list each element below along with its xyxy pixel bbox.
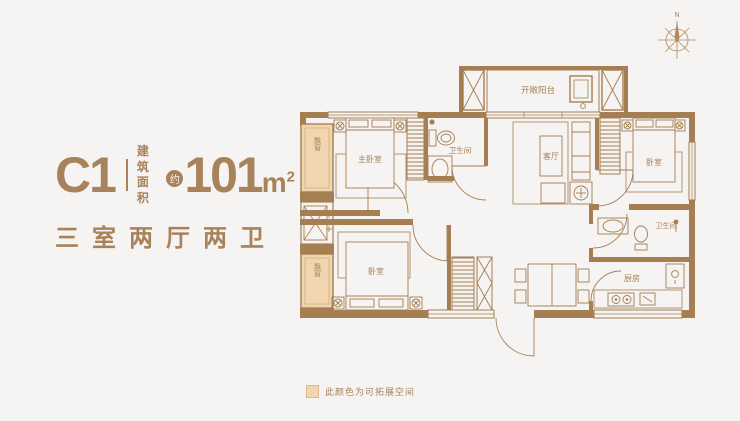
room-label-kitchen: 厨房 — [624, 273, 640, 283]
living-room: 客厅 — [513, 122, 592, 204]
unit-title-row: C1 建筑 面积 约 101m2 — [55, 144, 295, 206]
legend: 此颜色为可拓展空间 — [306, 385, 415, 398]
hall-storage — [452, 257, 492, 310]
unit-info: C1 建筑 面积 约 101m2 三室两厅两卫 — [55, 144, 295, 253]
room-label-bedroom-bottom: 卧室 — [368, 266, 384, 276]
master-bedroom: 主卧室 — [334, 118, 424, 198]
room-label-balcony: 开敞阳台 — [521, 85, 555, 95]
legend-note: 此颜色为可拓展空间 — [325, 385, 415, 398]
unit-code: C1 — [55, 150, 115, 200]
room-label-bathroom-top: 卫生间 — [449, 145, 472, 155]
balcony-equipment — [570, 76, 592, 108]
kitchen: 厨房 — [594, 264, 684, 308]
room-label-master-bedroom: 主卧室 — [358, 154, 382, 164]
legend-color-swatch — [306, 385, 319, 398]
bay-window-top-label: 飘窗 — [314, 137, 322, 152]
layout-type: 三室两厅两卫 — [55, 218, 295, 253]
bedroom-bottom: 卧室 — [332, 232, 422, 310]
bathroom-top: 卫生间 — [428, 119, 471, 182]
title-divider — [126, 159, 128, 191]
area-number: 101 — [184, 147, 261, 203]
balcony: 开敞阳台 — [459, 66, 628, 118]
bathroom-right: 卫生间 — [598, 218, 678, 250]
dining-set — [515, 264, 589, 306]
bedroom-right: 卧室 — [600, 118, 685, 192]
area-label-bottom: 面积 — [137, 175, 162, 206]
bay-window-top: 飘窗 — [301, 124, 333, 192]
area-unit-letter: m — [262, 167, 287, 198]
room-label-bathroom-right: 卫生间 — [656, 221, 677, 230]
area-label-top: 建筑 — [137, 144, 162, 175]
bay-window-bottom-label: 飘窗 — [314, 263, 322, 278]
floor-plan: 开敞阳台 飘窗 — [288, 52, 708, 367]
approx-badge: 约 — [166, 170, 183, 187]
area-label: 建筑 面积 — [137, 144, 162, 206]
area-value: 101m2 — [184, 150, 295, 200]
room-label-bedroom-right: 卧室 — [646, 157, 662, 167]
bay-window-bottom: 飘窗 — [301, 254, 333, 308]
room-label-living-room: 客厅 — [543, 151, 559, 161]
compass-north-label: N — [674, 12, 679, 19]
